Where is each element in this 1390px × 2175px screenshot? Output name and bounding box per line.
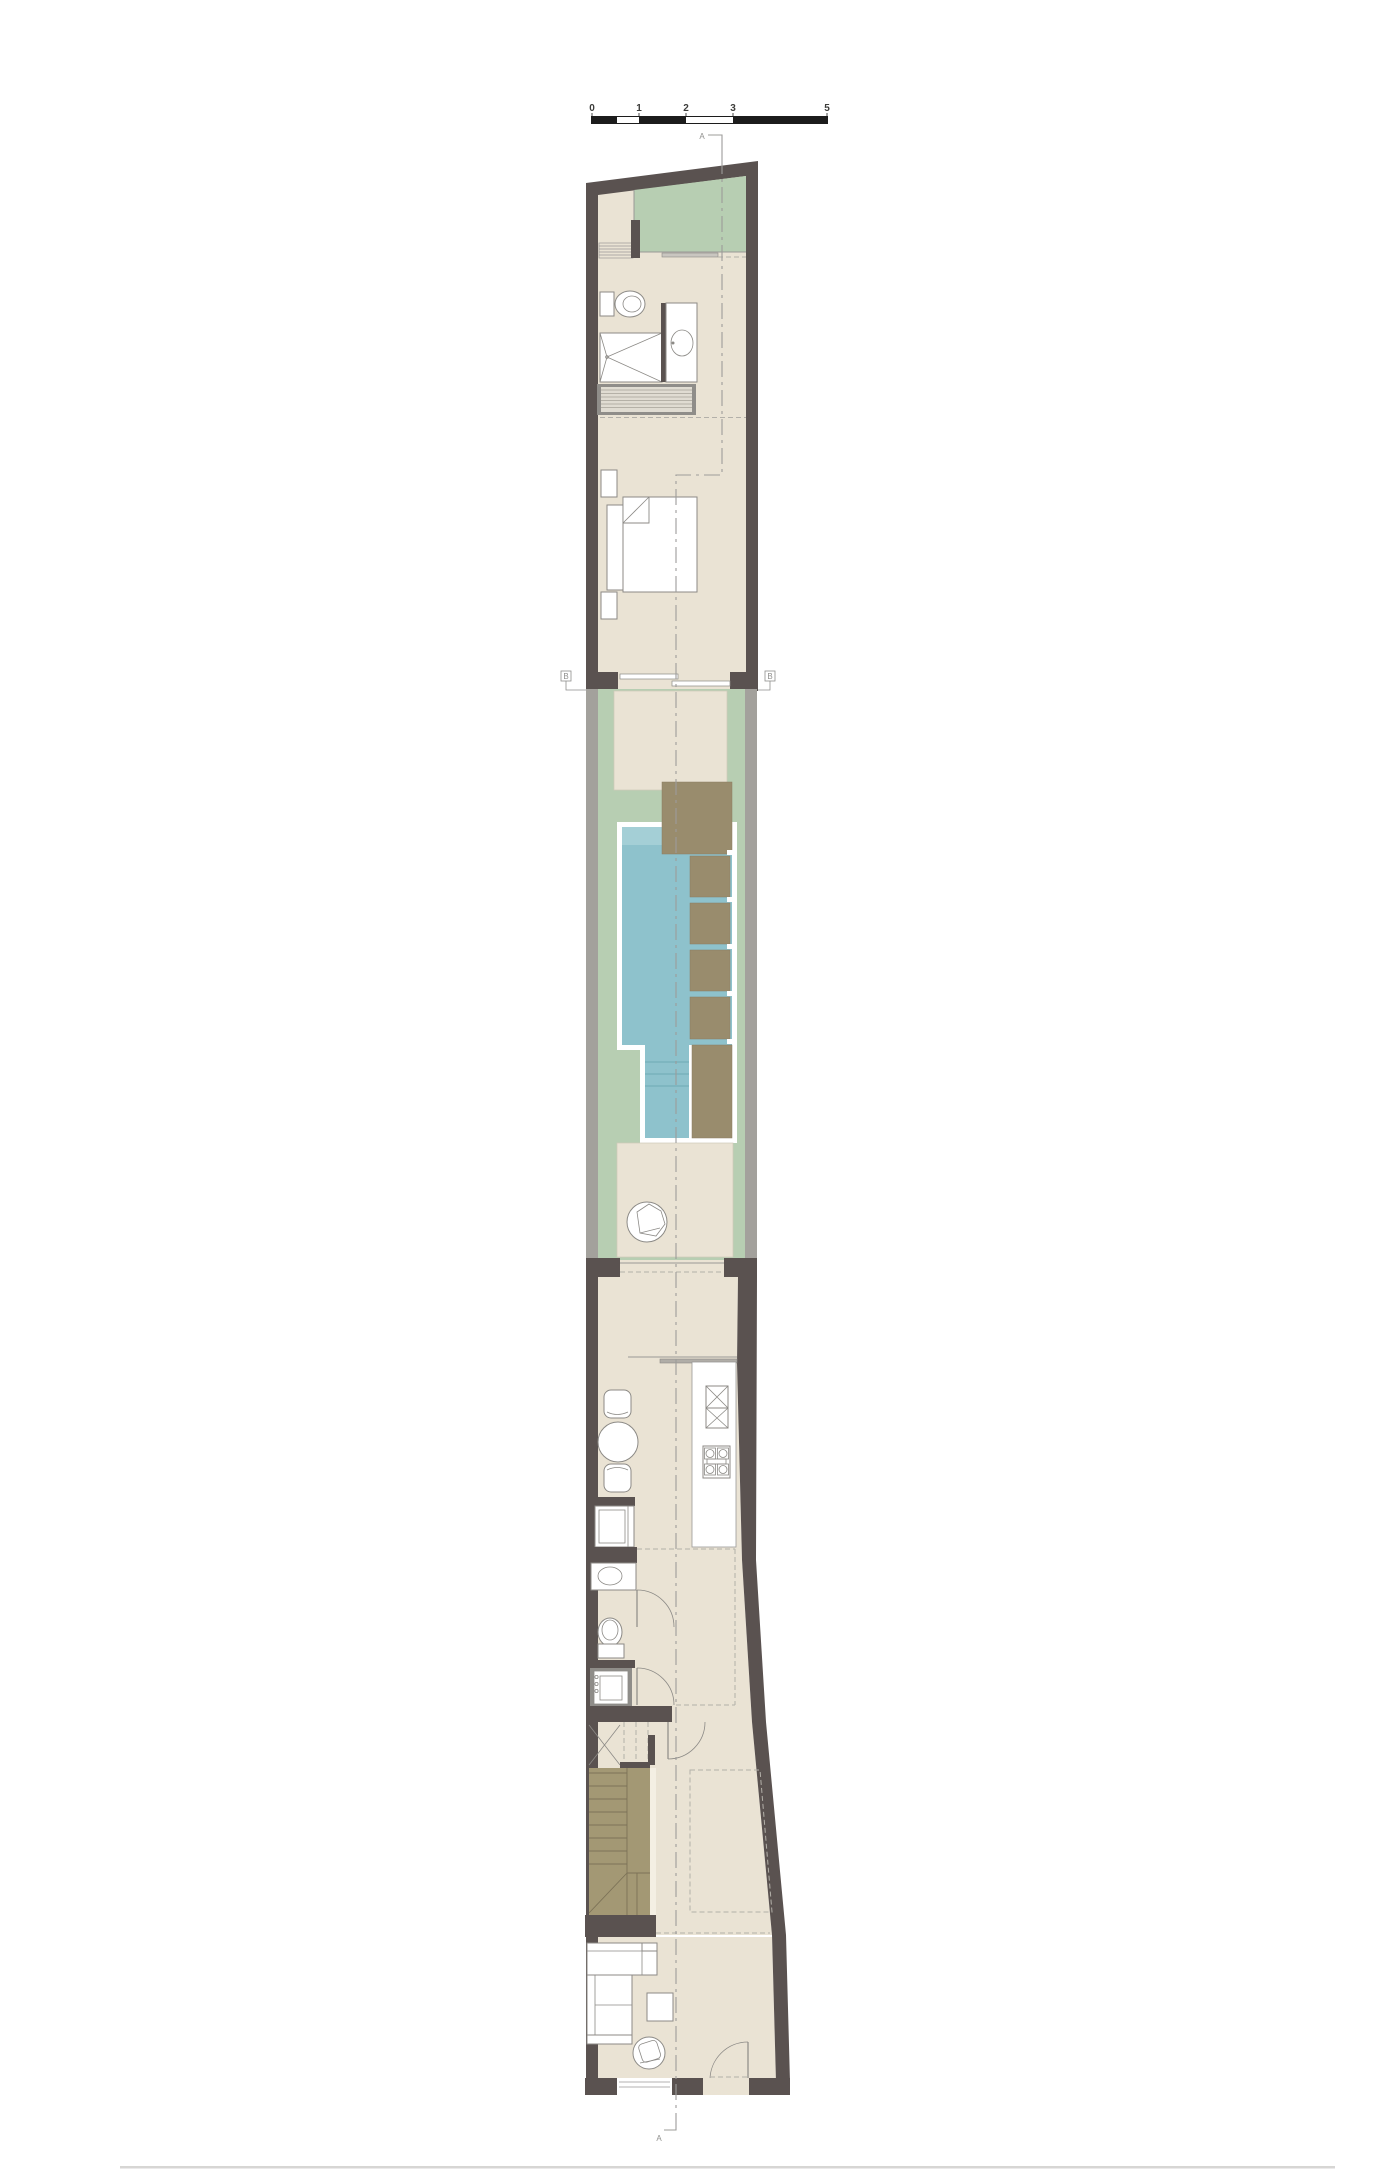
nightstand-top <box>601 470 617 497</box>
wall-stub <box>586 1497 635 1506</box>
fridge <box>595 1506 634 1547</box>
section-marker-b-right-label: B <box>767 672 772 681</box>
scale-label-5: 5 <box>824 103 830 114</box>
patio-upper <box>614 691 727 790</box>
stair-stringer <box>650 1768 656 1915</box>
scale-bar-seg <box>592 117 617 123</box>
wall-stub <box>631 220 640 258</box>
toilet-icon <box>598 1618 624 1658</box>
pool-deck-lower <box>692 1045 732 1138</box>
entry-window <box>617 2078 672 2095</box>
scale-label-3: 3 <box>730 103 736 114</box>
shower <box>600 333 662 382</box>
lounge-chair <box>633 2037 665 2069</box>
stair-south-wall <box>585 1915 656 1937</box>
upper-block <box>586 161 758 691</box>
scale-bar: 0 1 2 3 5 <box>589 103 830 124</box>
floorplan-svg: 0 1 2 3 5 <box>0 0 1390 2175</box>
pool-edge-line <box>689 1045 692 1138</box>
floorplan-canvas: 0 1 2 3 5 <box>0 0 1390 2175</box>
scale-bar-seg <box>639 117 686 123</box>
section-marker-b-right: B <box>758 671 775 690</box>
dining-table <box>598 1422 638 1462</box>
scale-bar-seg <box>733 117 827 123</box>
deck-platform <box>690 950 730 991</box>
vanity-sink <box>661 303 697 382</box>
pool-deck-main <box>662 782 732 854</box>
courtyard-wall-right <box>745 689 757 1262</box>
courtyard-south-wall <box>586 1258 757 1277</box>
scale-label-0: 0 <box>589 103 595 114</box>
dining-chair-bottom <box>604 1464 631 1492</box>
bedroom-south-wall <box>586 672 758 691</box>
section-marker-b-left: B <box>561 671 586 690</box>
stair-wall <box>648 1735 655 1765</box>
vent-grate <box>599 243 633 258</box>
sliding-door-panel <box>672 681 730 686</box>
stair-treads-area <box>589 1768 650 1915</box>
wall-stub <box>586 1660 635 1668</box>
wall-stub <box>586 1706 672 1722</box>
powder-sink <box>591 1563 636 1590</box>
deck-platform <box>690 903 730 944</box>
section-tick-top <box>708 135 722 158</box>
section-marker-a-bottom: A <box>656 2134 662 2143</box>
ground-shadow-line <box>120 2166 1335 2169</box>
nightstand-bottom <box>601 592 617 619</box>
cooktop <box>703 1446 730 1478</box>
washing-machine <box>590 1668 632 1707</box>
section-tick-bottom <box>664 2126 676 2130</box>
oven-tower <box>706 1386 728 1428</box>
wall-stub <box>586 1547 637 1563</box>
patio-lower <box>617 1143 733 1257</box>
south-wall <box>585 2078 790 2095</box>
dining-chair-top <box>604 1390 631 1418</box>
toilet-icon <box>600 291 645 317</box>
entry-door-opening <box>703 2078 749 2095</box>
deck-platform <box>690 997 730 1039</box>
bed <box>607 497 697 592</box>
scale-label-2: 2 <box>683 103 689 114</box>
deck-platform <box>690 856 730 897</box>
sliding-door-panel <box>620 674 678 679</box>
scale-label-1: 1 <box>636 103 642 114</box>
plant <box>627 1202 667 1242</box>
coffee-table <box>647 1993 673 2021</box>
stair-wall-cap <box>620 1762 650 1768</box>
courtyard-wall-left <box>586 689 598 1262</box>
closet <box>597 384 696 415</box>
courtyard <box>586 689 757 1277</box>
section-marker-a-top: A <box>699 132 705 141</box>
section-marker-b-left-label: B <box>563 672 568 681</box>
